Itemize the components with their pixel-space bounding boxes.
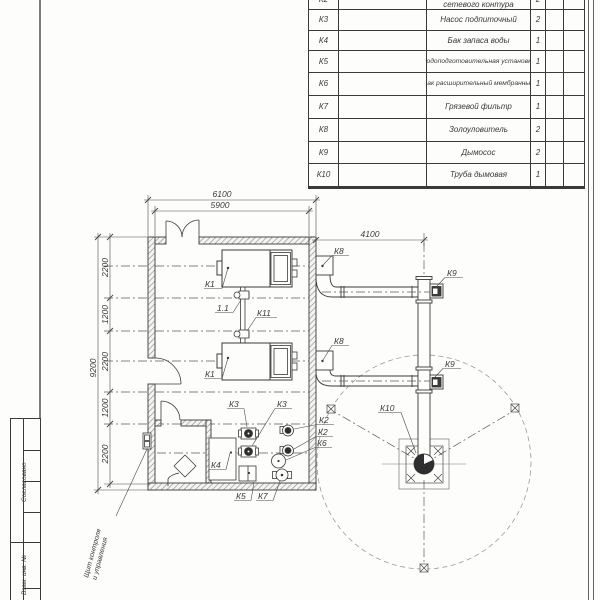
label-k9-2: К9 — [445, 359, 455, 369]
valve-k11 — [234, 330, 249, 338]
label-k11: К11 — [257, 308, 271, 318]
dim-overall-height: 9200 — [88, 358, 98, 377]
valve-1-1 — [234, 291, 249, 299]
label-k2-1: К2 — [319, 415, 329, 425]
drawing-sheet: 6100 5900 4100 9200 2200 1200 2200 1200 … — [0, 0, 600, 600]
spec-cell-pos: К2 — [309, 0, 339, 10]
dim-chain-5: 2200 — [100, 444, 110, 464]
spec-cell-pos: К10 — [309, 164, 339, 187]
spec-cell-name: Бак запаса воды — [427, 31, 531, 51]
spec-cell-name: сетевого контура — [427, 0, 531, 10]
label-k6: К6 — [317, 438, 327, 448]
spec-cell-name: Дымосос — [427, 142, 531, 164]
spec-cell-name: Грязевой фильтр — [427, 96, 531, 119]
spec-cell-qty: 1 — [531, 96, 546, 119]
flue-system — [315, 256, 443, 456]
spec-cell-pos: К3 — [309, 10, 339, 31]
spec-cell-doc — [339, 10, 427, 31]
spec-cell-qty: 2 — [531, 142, 546, 164]
spec-cell-doc — [339, 119, 427, 142]
spec-cell-doc — [339, 164, 427, 187]
pump-equipment — [143, 425, 294, 486]
spec-cell-name: Золоуловитель — [427, 119, 531, 142]
dim-chain-1: 2200 — [100, 258, 110, 278]
spec-cell-doc — [339, 0, 427, 10]
dimension-texts: 6100 5900 4100 9200 2200 1200 2200 1200 … — [88, 189, 380, 464]
stamp-inv-label: Взам. инв. № — [21, 555, 28, 595]
dim-inner-width: 5900 — [211, 200, 230, 210]
pump-k3-1 — [239, 428, 259, 439]
spec-cell-qty: 1 — [531, 164, 546, 187]
dim-flue-offset: 4100 — [361, 229, 380, 239]
spec-cell-pos: К7 — [309, 96, 339, 119]
spec-cell-qty: 1 — [531, 51, 546, 73]
spec-cell-pos: К9 — [309, 142, 339, 164]
label-k2-2: К2 — [318, 427, 328, 437]
control-panel-annotation: Щит контроля и управления — [83, 528, 111, 581]
label-k7: К7 — [258, 491, 268, 501]
spec-cell-doc — [339, 51, 427, 73]
floor-drain — [168, 455, 196, 486]
spec-cell-doc — [339, 96, 427, 119]
door-symbols — [155, 220, 199, 420]
pump-k3-2 — [239, 446, 259, 457]
stamp-inv-block: Взам. инв. № — [10, 542, 41, 600]
label-k8-1: К8 — [334, 246, 344, 256]
chimney-k10 — [414, 454, 434, 474]
spec-cell-qty: 1 — [531, 73, 546, 96]
boiler-k1-2 — [217, 343, 297, 380]
dim-chain-4: 1200 — [100, 398, 110, 417]
spec-cell-pos: К4 — [309, 31, 339, 51]
dim-overall-width: 6100 — [213, 189, 232, 199]
control-panel — [143, 433, 151, 449]
spec-cell-qty: 2 — [531, 10, 546, 31]
spec-cell-name: Насос подпиточный — [427, 10, 531, 31]
mud-filter-k7 — [273, 469, 292, 481]
stamp-agreed-block: Согласовано — [10, 418, 41, 544]
label-k9-1: К9 — [447, 268, 457, 278]
spec-cell-doc — [339, 73, 427, 96]
spec-cell-qty: 2 — [531, 0, 546, 10]
spec-cell-name: Водоподготовительная установка — [427, 51, 531, 73]
water-treatment-k5 — [239, 466, 256, 481]
spec-cell-name: Бак расширительный мембранный — [427, 73, 531, 96]
label-k4: К4 — [211, 460, 221, 470]
spec-cell-doc — [339, 142, 427, 164]
ash-catcher-k8-1 — [315, 256, 333, 275]
pump-k2-2 — [280, 445, 294, 456]
spec-cell-name: Труба дымовая — [427, 164, 531, 187]
label-k3-1: К3 — [229, 399, 239, 409]
partition-wall-h — [155, 420, 161, 426]
water-tank-k4 — [209, 438, 236, 480]
expansion-tank-k6 — [272, 454, 286, 468]
stamp-agreed-label: Согласовано — [21, 462, 28, 502]
pump-k2-1 — [280, 425, 294, 436]
spec-cell-doc — [339, 31, 427, 51]
label-k8-2: К8 — [334, 336, 344, 346]
label-k3-2: К3 — [277, 399, 287, 409]
spec-cell-qty: 2 — [531, 119, 546, 142]
label-k1-2: К1 — [205, 369, 215, 379]
boiler-piping — [234, 287, 249, 343]
label-k1-1: К1 — [205, 279, 215, 289]
label-k10: К10 — [380, 403, 395, 413]
spec-cell-pos: К6 — [309, 73, 339, 96]
spec-cell-qty: 1 — [531, 31, 546, 51]
spec-cell-pos: К8 — [309, 119, 339, 142]
spec-cell-pos: К5 — [309, 51, 339, 73]
ash-catcher-k8-2 — [315, 351, 333, 370]
dim-chain-3: 2200 — [100, 352, 110, 372]
dim-chain-2: 1200 — [100, 305, 110, 324]
spec-table: К2 сетевого контура 2 К3 Насос подпиточн… — [308, 0, 585, 189]
label-k5: К5 — [236, 491, 246, 501]
label-1-1: 1.1 — [217, 303, 229, 313]
